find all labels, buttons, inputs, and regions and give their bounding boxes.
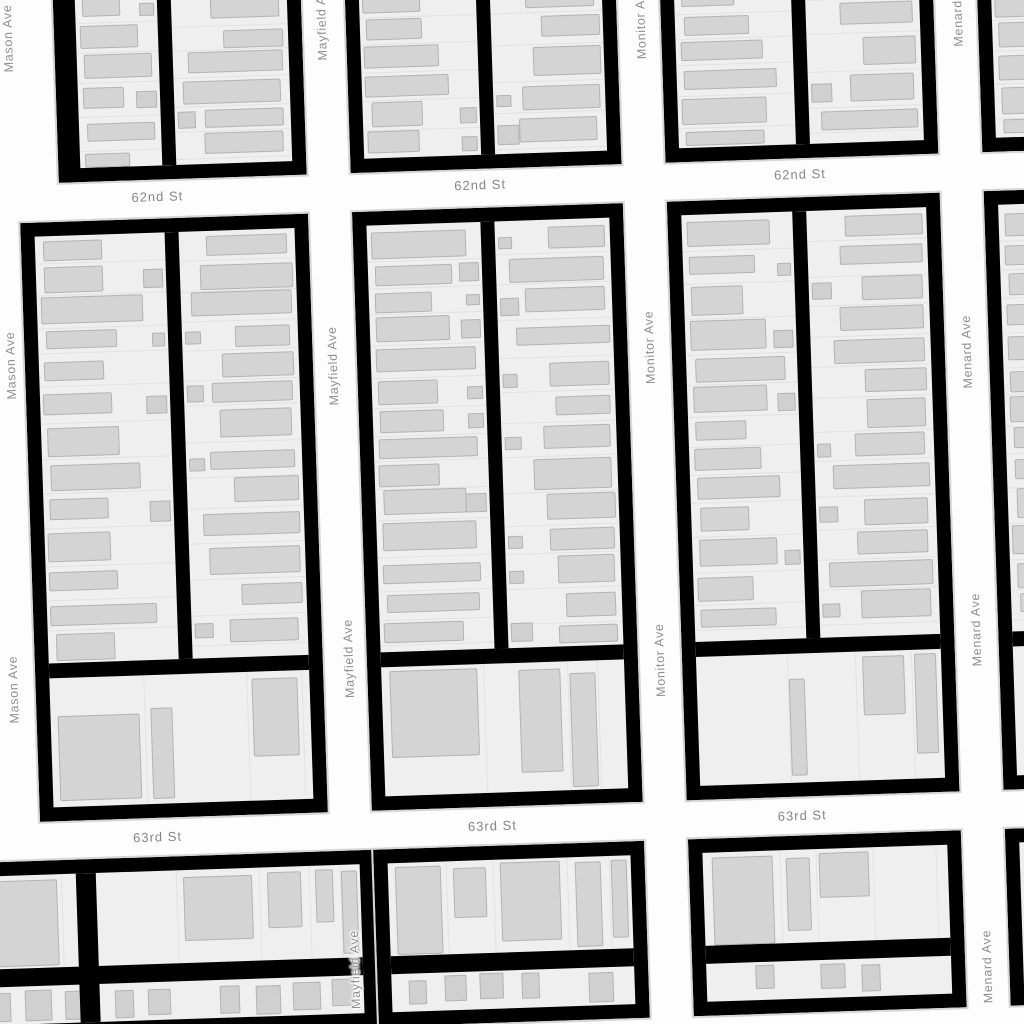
garage-footprint	[178, 111, 196, 129]
building-footprint	[829, 559, 934, 587]
building-footprint	[575, 861, 604, 947]
parcel-line	[492, 860, 496, 953]
building-footprint	[375, 264, 453, 287]
garage-footprint	[114, 990, 134, 1019]
building-footprint	[150, 707, 176, 799]
garage-footprint	[588, 972, 614, 1003]
building-footprint	[364, 44, 439, 68]
parcel-line	[46, 562, 176, 567]
street-label: 63rd St	[133, 829, 182, 846]
parcel-line	[693, 569, 804, 574]
building-footprint	[223, 28, 283, 48]
building-footprint	[1010, 370, 1024, 393]
building-footprint	[380, 409, 445, 433]
building-footprint	[518, 669, 563, 773]
avenue-label: Menard Ave	[968, 593, 984, 667]
avenue-label: Mayfield Ave	[313, 0, 330, 61]
building-footprint	[82, 86, 124, 108]
garage-footprint	[500, 298, 519, 316]
garage-footprint	[812, 282, 833, 300]
garage-footprint	[502, 374, 517, 388]
parcel-line	[483, 664, 488, 793]
parcel-line	[192, 641, 308, 646]
garage-footprint	[139, 3, 155, 16]
garage-footprint	[861, 964, 881, 992]
building-footprint	[50, 497, 110, 519]
building-footprint	[834, 337, 926, 364]
garage-footprint	[292, 981, 321, 1010]
parcel-line	[999, 238, 1024, 242]
building-footprint	[204, 107, 284, 128]
building-footprint	[51, 462, 142, 492]
building-footprint	[212, 380, 293, 402]
building-footprint	[785, 857, 812, 931]
avenue-label: Mason Ave	[0, 4, 16, 72]
alley	[76, 873, 101, 1023]
map-viewport[interactable]: 62nd St62nd St62nd St63rd St63rd St63rd …	[0, 0, 1024, 1024]
parcel-line	[992, 17, 1024, 21]
parcel-line	[820, 621, 940, 626]
building-footprint	[994, 0, 1024, 18]
parcel-line	[691, 499, 802, 504]
building-footprint	[47, 426, 120, 458]
parcel-line	[61, 874, 65, 967]
building-footprint	[375, 346, 476, 373]
building-footprint	[549, 527, 615, 551]
building-footprint	[1004, 245, 1024, 266]
building-footprint	[688, 254, 755, 274]
building-footprint	[1001, 85, 1024, 115]
building-footprint	[683, 15, 748, 36]
building-footprint	[200, 262, 293, 290]
alley	[695, 634, 940, 657]
building-footprint	[516, 324, 610, 346]
building-footprint	[686, 129, 765, 146]
parcel-line	[372, 375, 486, 380]
parcel-line	[1002, 330, 1024, 334]
parcel-line	[1012, 617, 1024, 621]
city-block	[0, 850, 379, 1024]
garage-footprint	[136, 90, 158, 108]
parcel-line	[361, 69, 478, 74]
building-footprint	[209, 0, 279, 19]
building-footprint	[1008, 272, 1024, 295]
building-footprint	[533, 45, 602, 76]
building-footprint	[379, 436, 478, 459]
building-footprint	[315, 869, 334, 922]
garage-footprint	[774, 329, 794, 348]
parcel-line	[377, 554, 491, 559]
parcel-line	[1006, 451, 1024, 455]
building-footprint	[681, 97, 767, 126]
building-footprint	[209, 545, 300, 575]
garage-footprint	[521, 973, 540, 999]
building-footprint	[1005, 212, 1024, 236]
garage-footprint	[25, 990, 53, 1022]
alley	[381, 644, 624, 667]
building-footprint	[82, 0, 120, 17]
building-footprint	[235, 324, 291, 347]
parcel-line	[507, 586, 622, 591]
garage-footprint	[0, 993, 11, 1023]
street-label: 63rd St	[468, 818, 517, 835]
building-footprint	[367, 130, 420, 154]
building-footprint	[861, 588, 932, 619]
alley	[155, 0, 176, 165]
building-footprint	[525, 286, 605, 312]
garage-footprint	[187, 385, 205, 402]
building-footprint	[43, 392, 112, 415]
avenue-label: Mayfield Ave	[340, 619, 357, 698]
building-footprint	[862, 655, 906, 716]
garage-footprint	[819, 507, 839, 523]
building-footprint	[453, 867, 487, 918]
building-footprint	[365, 73, 449, 97]
parcel-line	[684, 280, 795, 285]
building-footprint	[87, 121, 156, 142]
parcel-line	[678, 125, 795, 130]
building-footprint	[395, 866, 444, 955]
building-footprint	[549, 361, 609, 386]
parcel-line	[189, 539, 305, 544]
parcel-line	[498, 316, 613, 321]
parcel-line	[1010, 556, 1024, 560]
building-footprint	[383, 562, 481, 584]
building-footprint	[387, 592, 481, 613]
building-footprint	[84, 53, 153, 79]
building-footprint	[555, 394, 611, 416]
building-footprint	[241, 582, 303, 606]
garage-footprint	[505, 436, 522, 450]
street-label: 62nd St	[454, 177, 506, 194]
parcel-line	[993, 48, 1024, 52]
building-footprint	[855, 431, 926, 456]
parcel-line	[494, 110, 606, 115]
building-footprint	[548, 225, 605, 250]
alley	[474, 0, 495, 155]
building-footprint	[233, 475, 299, 502]
building-footprint	[383, 487, 468, 515]
parcel-line	[694, 601, 805, 606]
building-footprint	[509, 256, 605, 283]
garage-footprint	[466, 294, 481, 305]
avenue-label: Menard Ave	[949, 0, 965, 47]
building-footprint	[697, 576, 754, 601]
garage-footprint	[508, 535, 524, 549]
building-footprint	[85, 152, 131, 167]
garage-footprint	[220, 985, 240, 1014]
parcel-line	[308, 866, 312, 959]
building-footprint	[864, 367, 927, 393]
building-footprint	[998, 21, 1024, 48]
building-footprint	[58, 713, 142, 801]
parcel-line	[172, 23, 288, 28]
parcel-line	[675, 36, 792, 41]
building-footprint	[43, 240, 102, 261]
avenue-label: Mason Ave	[5, 655, 21, 723]
building-footprint	[833, 462, 930, 489]
building-footprint	[1013, 426, 1024, 449]
building-footprint	[857, 529, 929, 555]
building-footprint	[522, 84, 601, 110]
building-footprint	[1006, 302, 1024, 326]
city-block	[658, 0, 938, 163]
parcel-line	[779, 850, 783, 943]
building-footprint	[1007, 335, 1024, 361]
building-footprint	[188, 49, 284, 73]
building-footprint	[850, 72, 914, 101]
garage-footprint	[784, 550, 801, 566]
alley	[1012, 627, 1024, 647]
building-footprint	[866, 398, 926, 429]
building-footprint	[267, 871, 302, 928]
parcel-line	[1000, 267, 1024, 271]
parcel-line	[258, 868, 262, 961]
garage-footprint	[459, 107, 477, 124]
avenue-label: Mayfield Ave	[325, 326, 342, 405]
parcel-line	[38, 349, 168, 354]
parcel-line	[682, 247, 793, 252]
garage-footprint	[256, 985, 282, 1015]
parcel-line	[78, 80, 160, 84]
garage-footprint	[143, 268, 164, 287]
building-footprint	[50, 603, 157, 627]
building-footprint	[840, 304, 924, 331]
building-footprint	[689, 319, 766, 352]
parcel-line	[79, 114, 161, 118]
building-footprint	[49, 570, 119, 591]
building-footprint	[863, 35, 917, 65]
building-footprint	[693, 385, 767, 413]
building-footprint	[821, 108, 918, 130]
parcel-line	[302, 670, 307, 799]
building-footprint	[863, 497, 928, 525]
building-footprint	[210, 449, 296, 471]
building-footprint	[206, 233, 287, 256]
building-footprint	[48, 531, 112, 562]
city-block	[667, 193, 960, 801]
building-footprint	[221, 351, 294, 377]
city-block	[20, 214, 328, 822]
alley	[480, 221, 508, 648]
parcel-line	[935, 845, 939, 938]
parcel-line	[176, 870, 180, 963]
building-footprint	[547, 491, 616, 520]
city-block	[352, 203, 643, 811]
garage-footprint	[811, 83, 832, 103]
building-footprint	[845, 213, 924, 237]
garage-footprint	[817, 444, 831, 458]
building-footprint	[559, 624, 619, 644]
building-footprint	[378, 380, 438, 406]
building-footprint	[840, 1, 913, 26]
garage-footprint	[465, 493, 487, 513]
building-footprint	[499, 861, 562, 941]
building-footprint	[251, 677, 300, 756]
building-footprint	[1010, 394, 1024, 422]
parcel-line	[495, 251, 610, 256]
parcel-line	[188, 505, 304, 510]
building-footprint	[46, 329, 117, 350]
building-footprint	[375, 291, 433, 314]
avenue-label: Menard Ave	[959, 315, 975, 389]
building-footprint	[543, 424, 611, 449]
building-footprint	[1014, 458, 1024, 479]
building-footprint	[1017, 562, 1024, 588]
parcel-line	[47, 596, 177, 601]
garage-footprint	[462, 136, 478, 151]
street-label: 63rd St	[778, 807, 827, 824]
building-footprint	[524, 0, 594, 9]
garage-footprint	[195, 623, 214, 639]
building-footprint	[684, 68, 778, 90]
city-block	[975, 0, 1024, 152]
building-footprint	[691, 285, 744, 316]
building-footprint	[389, 669, 480, 758]
avenue-label: Mayfield Ave	[347, 930, 364, 1009]
map-canvas: 62nd St62nd St62nd St63rd St63rd St63rd …	[0, 0, 1024, 1024]
parcel-line	[814, 457, 934, 462]
parcel-line	[994, 81, 1024, 85]
building-footprint	[533, 456, 612, 489]
building-footprint	[697, 475, 780, 500]
building-footprint	[681, 0, 734, 7]
parcel-line	[184, 402, 300, 407]
building-footprint	[557, 554, 615, 584]
avenue-label: Monitor Ave	[633, 0, 649, 59]
building-footprint	[79, 24, 138, 49]
building-footprint	[914, 653, 939, 754]
building-footprint	[365, 18, 422, 41]
parcel-line	[499, 354, 614, 359]
parcel-line	[688, 413, 799, 418]
parcel-line	[807, 237, 927, 242]
building-footprint	[1012, 524, 1024, 555]
parcel-line	[446, 861, 450, 954]
building-footprint	[540, 14, 600, 37]
building-footprint	[695, 420, 747, 442]
building-footprint	[44, 266, 103, 293]
street-label: 62nd St	[131, 188, 183, 205]
building-footprint	[219, 407, 292, 437]
parcel-line	[690, 471, 801, 476]
building-footprint	[695, 356, 787, 383]
building-footprint	[229, 617, 299, 643]
building-footprint	[566, 592, 616, 618]
garage-footprint	[480, 973, 505, 1000]
parcel-line	[495, 146, 607, 151]
building-footprint	[681, 40, 763, 62]
avenue-label: Menard Ave	[979, 930, 995, 1004]
parcel-line	[872, 847, 876, 940]
garage-footprint	[150, 501, 171, 522]
city-block	[343, 0, 621, 173]
building-footprint	[44, 360, 104, 381]
parcel-line	[143, 675, 148, 804]
garage-footprint	[777, 263, 792, 276]
garage-footprint	[148, 988, 172, 1015]
building-footprint	[203, 511, 301, 537]
garage-footprint	[822, 603, 840, 617]
building-footprint	[861, 274, 924, 300]
building-footprint	[700, 506, 750, 531]
alley	[789, 0, 810, 144]
building-footprint	[998, 54, 1024, 81]
building-footprint	[1020, 592, 1024, 612]
building-footprint	[204, 131, 284, 154]
building-footprint	[56, 632, 116, 661]
parcel-line	[190, 576, 306, 581]
building-footprint	[183, 875, 254, 941]
city-block	[1005, 823, 1024, 1006]
garage-footprint	[755, 964, 775, 989]
building-footprint	[362, 0, 421, 13]
parcel-line	[806, 30, 920, 35]
garage-footprint	[498, 237, 512, 249]
building-footprint	[711, 855, 776, 945]
parcel-line	[179, 257, 295, 262]
building-footprint	[40, 294, 143, 324]
garage-footprint	[467, 386, 483, 399]
garage-footprint	[777, 392, 796, 411]
building-footprint	[371, 230, 466, 260]
building-footprint	[183, 78, 282, 104]
building-footprint	[378, 464, 440, 487]
alley	[792, 211, 820, 638]
parcel-line	[500, 389, 615, 394]
building-footprint	[519, 116, 598, 143]
garage-footprint	[511, 623, 533, 643]
garage-footprint	[189, 458, 205, 472]
building-footprint	[1016, 486, 1024, 518]
garage-footprint	[459, 262, 480, 282]
avenue-label: Mason Ave	[3, 331, 19, 399]
building-footprint	[611, 859, 630, 938]
parcel-line	[41, 419, 171, 424]
garage-footprint	[509, 571, 525, 585]
garage-footprint	[497, 124, 519, 146]
garage-footprint	[444, 975, 467, 1002]
building-footprint	[382, 520, 477, 552]
parcel-line	[44, 524, 174, 529]
building-footprint	[570, 672, 599, 787]
parcel-line	[80, 148, 162, 152]
parcel-line	[372, 404, 486, 409]
garage-footprint	[461, 319, 481, 339]
parcel-line	[1003, 365, 1024, 369]
city-block	[51, 0, 306, 183]
parcel-line	[567, 857, 571, 950]
avenue-label: Monitor Ave	[652, 623, 668, 697]
parcel-line	[676, 61, 793, 66]
building-footprint	[383, 621, 464, 643]
building-footprint	[789, 679, 808, 776]
building-footprint	[699, 538, 778, 567]
city-block	[984, 185, 1024, 790]
building-footprint	[191, 290, 293, 317]
parcel-line	[1009, 521, 1024, 525]
garage-footprint	[185, 331, 201, 345]
parcel-line	[40, 382, 170, 387]
building-footprint	[694, 447, 762, 471]
garage-footprint	[146, 396, 167, 414]
parcel-line	[855, 652, 860, 781]
parcel-line	[493, 79, 605, 84]
building-footprint	[375, 315, 450, 342]
garage-footprint	[408, 980, 427, 1005]
parcel-line	[186, 439, 302, 444]
garage-footprint	[151, 333, 165, 347]
